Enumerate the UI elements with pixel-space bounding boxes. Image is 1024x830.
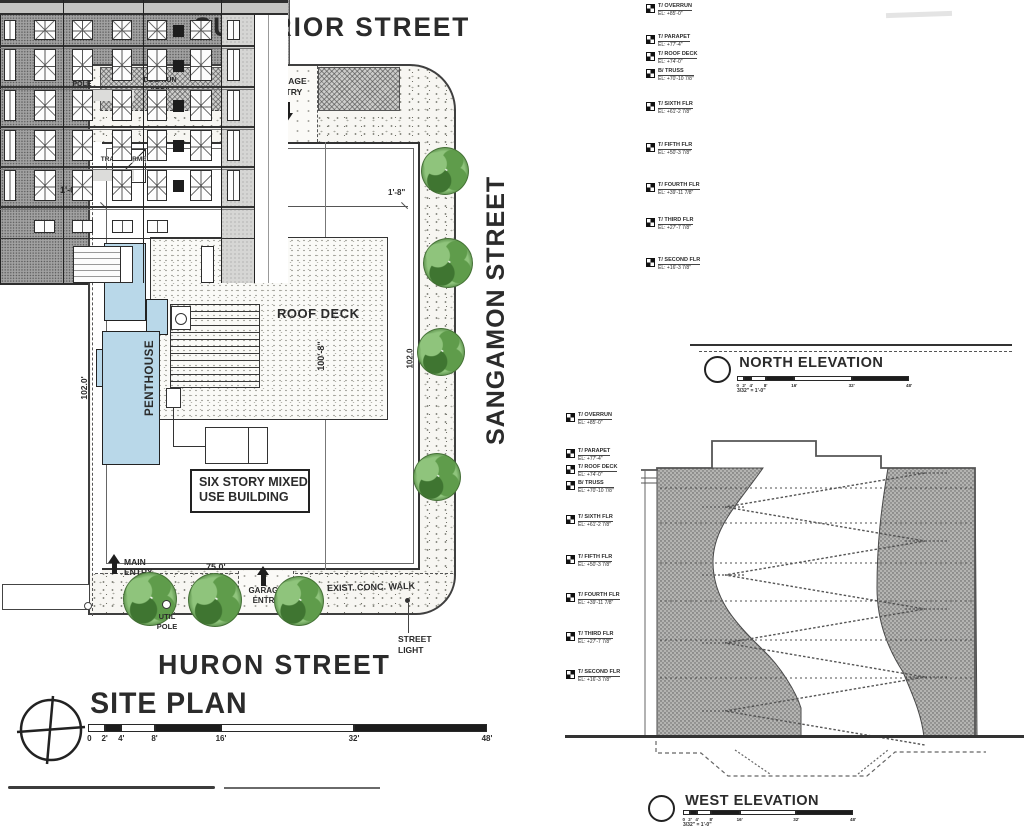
scale-tick-label: 4' [695,817,699,822]
marker-label: T/ OVERRUNEL: +85'-0" [658,3,692,18]
scale-segment [740,810,797,815]
west-elevation-scale-bar: 02'4'8'16'32'48' [683,810,853,815]
benchmark-icon [566,413,575,422]
window [227,49,240,81]
marker-elevation: EL: +27'-7 7/8" [578,639,613,645]
util-pole-bottom-label: UTILPOLE [152,612,182,632]
marker-label: T/ FIFTH FLREL: +50'-3 7/8" [658,142,692,157]
roof-hatch-box [166,388,181,408]
marker-name: T/ PARAPET [658,34,690,42]
scale-tick-label: 2' [742,383,746,388]
marker-name: T/ ROOF DECK [658,51,697,59]
scale-segment [737,376,744,381]
scale-segment [683,810,690,815]
benchmark-icon [646,143,655,152]
marker-label: T/ FOURTH FLREL: +39'-11 7/8" [658,182,700,197]
bay-divider [63,0,64,283]
west-ground-line [565,735,1024,738]
scale-segment [751,376,765,381]
side-strip [254,0,288,283]
mech-box [205,427,268,464]
window [190,130,212,161]
elevation-marker: T/ FOURTH FLREL: +39'-11 7/8" [646,182,700,197]
benchmark-icon [566,481,575,490]
window [34,90,56,121]
marker-elevation: EL: +61'-2 7/8" [578,522,613,528]
roof-line-h [173,446,205,447]
window [147,49,167,81]
neighbor-walk [2,584,90,610]
window [34,170,56,201]
marker-label: T/ PARAPETEL: +77'-4" [578,448,610,463]
floor-line [0,126,254,128]
scale-segment [105,724,122,732]
window [227,20,240,40]
west-elevation-title: WEST ELEVATION [685,792,819,809]
benchmark-icon [566,670,575,679]
benchmark-icon [646,218,655,227]
west-elevation-drawing-main [640,415,1024,820]
site-plan-title: SITE PLAN [90,687,247,721]
scale-segment [121,724,154,732]
marker-label: T/ ROOF DECKEL: +74'-0" [658,51,697,66]
window [4,49,16,81]
marker-name: T/ FOURTH FLR [658,182,700,190]
street-name-sangamon: SANGAMON STREET [482,185,512,445]
window [227,130,240,161]
marker-name: B/ TRUSS [578,480,614,488]
site-plan-scale-bar: 02'4'8'16'32'48' [88,724,487,732]
scale-tick-label: 48' [906,383,912,388]
dim-deck-depth: 100'-8" [316,332,326,380]
elevation-marker: T/ PARAPETEL: +77'-4" [646,34,690,49]
north-scale-note: 3/32" = 1'-0" [737,388,766,394]
marker-name: T/ SECOND FLR [578,669,620,677]
scale-tick-label: 48' [850,817,856,822]
scale-tick-label: 0 [736,383,739,388]
window [190,49,212,81]
tree-icon [274,576,324,626]
marker-label: T/ THIRD FLREL: +27'-7 7/8" [658,217,693,232]
window [4,170,16,201]
marker-elevation: EL: +50'-3 7/8" [578,562,612,568]
benchmark-icon [566,465,575,474]
north-base-line [690,344,1012,346]
scale-tick-label: 32' [793,817,799,822]
tree-icon [417,328,465,376]
window [72,130,93,161]
tree-icon [413,453,461,501]
dim-left-depth: 102.0' [79,370,89,406]
window [190,20,212,40]
marker-label: B/ TRUSSEL: +70'-10 7/8" [578,480,614,495]
architectural-sheet: SUPERIOR STREET DOG RUNAREA GARAGEENTRY … [0,0,1024,830]
watertable-line [0,238,254,239]
marker-elevation: EL: +70'-10 7/8" [658,76,694,82]
property-line-left [92,142,93,616]
marker-elevation: EL: +74'-0" [578,472,617,478]
scale-tick-label: 8' [151,734,157,743]
benchmark-icon [566,555,575,564]
bay-divider [143,0,144,283]
main-entry-arrow [107,554,121,574]
elevation-marker: T/ SIXTH FLREL: +61'-2 7/8" [566,514,613,529]
marker-label: T/ SECOND FLREL: +16'-3 7/8" [578,669,620,684]
building-label-line1: SIX STORY MIXED [199,475,308,490]
window [147,90,167,121]
north-elevation-scale-bar: 02'4'8'16'32'48' [737,376,909,381]
scan-line-2 [224,787,380,789]
scan-smudge [886,11,952,18]
dark-panel [173,140,184,152]
marker-label: T/ SIXTH FLREL: +61'-2 7/8" [658,101,693,116]
tree-icon [421,147,469,195]
elevation-marker: T/ SECOND FLREL: +16'-3 7/8" [646,257,700,272]
benchmark-icon [566,632,575,641]
roof-line-v [173,408,174,446]
floor-line-thin [0,209,254,210]
north-compass-icon [16,694,86,766]
benchmark-icon [646,258,655,267]
north-elevation-title: NORTH ELEVATION [739,354,883,371]
floor-line [0,86,254,88]
window [4,90,16,121]
marker-elevation: EL: +39'-11 7/8" [578,600,620,606]
window [112,220,133,233]
dark-panel [173,100,184,112]
scale-tick-label: 4' [750,383,754,388]
dim-bottom: 75.0' [206,562,226,572]
entry-door [201,246,214,283]
benchmark-icon [646,4,655,13]
north-ground-dashed [699,351,1012,352]
marker-elevation: EL: +74'-0" [658,59,697,65]
marker-elevation: EL: +85'-0" [658,11,692,17]
street-light-label: STREETLIGHT [398,634,432,656]
benchmark-icon [646,102,655,111]
window [34,220,55,233]
scale-tick-label: 16' [216,734,227,743]
marker-name: T/ SIXTH FLR [578,514,613,522]
window [227,90,240,121]
window [112,130,132,161]
street-light-leader [408,603,409,633]
marker-elevation: EL: +39'-11 7/8" [658,190,700,196]
garage-door [73,246,127,283]
scale-segment [794,376,851,381]
scale-segment [690,810,697,815]
scale-segment [852,376,909,381]
bay-divider [221,0,222,283]
scale-tick-label: 32' [849,383,855,388]
scale-segment [711,810,739,815]
dim-right-offset: 1'-8" [388,188,405,197]
window [72,170,93,201]
building-label-line2: USE BUILDING [199,490,308,505]
marker-name: T/ SIXTH FLR [658,101,693,109]
window [112,20,132,40]
benchmark-icon [646,52,655,61]
entry-door [120,246,133,283]
scale-segment [744,376,751,381]
marker-name: T/ FIFTH FLR [658,142,692,150]
window [72,220,93,233]
benchmark-icon [566,515,575,524]
window [147,20,167,40]
window [147,170,167,201]
window [227,170,240,201]
benchmark-icon [646,183,655,192]
benchmark-icon [566,449,575,458]
marker-name: B/ TRUSS [658,68,694,76]
window [72,20,93,40]
scan-line-1 [8,786,215,789]
scale-segment [354,724,487,732]
marker-label: T/ FOURTH FLREL: +39'-11 7/8" [578,592,620,607]
marker-name: T/ OVERRUN [658,3,692,11]
elevator-box [171,306,191,330]
marker-label: T/ PARAPETEL: +77'-4" [658,34,690,49]
marker-elevation: EL: +16'-3 7/8" [578,677,620,683]
window [34,130,56,161]
window [4,130,16,161]
floor-line [0,166,254,168]
scale-tick-label: 16' [737,817,743,822]
marker-elevation: EL: +50'-3 7/8" [658,150,692,156]
marker-label: T/ OVERRUNEL: +85'-0" [578,412,612,427]
window [112,90,132,121]
dim-right-depth: 102.0 [406,341,415,377]
elevation-marker: B/ TRUSSEL: +70'-10 7/8" [646,68,694,83]
elevation-marker: T/ OVERRUNEL: +85'-0" [646,3,692,18]
window [72,90,93,121]
elevation-marker: T/ FIFTH FLREL: +50'-3 7/8" [646,142,692,157]
scale-segment [697,810,711,815]
scale-segment [88,724,105,732]
window [112,170,132,201]
roof-deck-label: ROOF DECK [277,306,360,321]
window [4,20,16,40]
side-strip-line [268,0,269,283]
building-label-box: SIX STORY MIXED USE BUILDING [190,469,310,513]
scale-tick-label: 8' [764,383,768,388]
marker-label: T/ SIXTH FLREL: +61'-2 7/8" [578,514,613,529]
scale-tick-label: 8' [710,817,714,822]
elevation-marker: T/ ROOF DECKEL: +74'-0" [566,464,617,479]
window [34,20,56,40]
marker-name: T/ THIRD FLR [578,631,613,639]
marker-elevation: EL: +27'-7 7/8" [658,225,693,231]
marker-elevation: EL: +16'-3 7/8" [658,265,700,271]
elevation-marker: B/ TRUSSEL: +70'-10 7/8" [566,480,614,495]
window [34,49,56,81]
scale-tick-label: 2' [101,734,107,743]
elevation-marker: T/ FIFTH FLREL: +50'-3 7/8" [566,554,612,569]
floor-line [0,45,254,47]
scale-tick-label: 4' [118,734,124,743]
marker-elevation: EL: +61'-2 7/8" [658,109,693,115]
marker-name: T/ FIFTH FLR [578,554,612,562]
scale-tick-label: 0 [682,817,685,822]
marker-name: T/ PARAPET [578,448,610,456]
dark-panel [173,180,184,192]
marker-name: T/ OVERRUN [578,412,612,420]
west-title-bubble [648,795,675,822]
tree-icon [188,573,242,627]
elevation-marker: T/ ROOF DECKEL: +74'-0" [646,51,697,66]
util-pole-bottom-symbol [162,600,171,609]
marker-elevation: EL: +70'-10 7/8" [578,488,614,494]
hatched-strip [318,67,400,111]
marker-label: T/ ROOF DECKEL: +74'-0" [578,464,617,479]
window [190,90,212,121]
window [147,130,167,161]
cornice [0,0,288,15]
scale-tick-label: 2' [688,817,692,822]
marker-label: T/ THIRD FLREL: +27'-7 7/8" [578,631,613,646]
marker-elevation: EL: +77'-4" [658,42,690,48]
north-title-bubble [704,356,731,383]
marker-label: T/ FIFTH FLREL: +50'-3 7/8" [578,554,612,569]
window [112,49,132,81]
floor-line [0,206,254,208]
dark-panel [173,60,184,72]
scale-tick-label: 16' [791,383,797,388]
neighbor-walk-pole [84,602,92,610]
benchmark-icon [566,593,575,602]
elevation-marker: T/ FOURTH FLREL: +39'-11 7/8" [566,592,620,607]
west-scale-note: 3/32" = 1'-0" [683,822,712,828]
marker-name: T/ ROOF DECK [578,464,617,472]
street-name-huron: HURON STREET [158,649,391,681]
elevation-marker: T/ OVERRUNEL: +85'-0" [566,412,612,427]
scale-segment [766,376,795,381]
elevation-marker: T/ SECOND FLREL: +16'-3 7/8" [566,669,620,684]
marker-elevation: EL: +85'-0" [578,420,612,426]
scale-tick-label: 0 [87,734,91,743]
benchmark-icon [646,69,655,78]
scale-segment [796,810,853,815]
marker-elevation: EL: +77'-4" [578,456,610,462]
marker-name: T/ FOURTH FLR [578,592,620,600]
scale-segment [155,724,222,732]
marker-label: B/ TRUSSEL: +70'-10 7/8" [658,68,694,83]
elevation-marker: T/ SIXTH FLREL: +61'-2 7/8" [646,101,693,116]
marker-name: T/ THIRD FLR [658,217,693,225]
penthouse-label: PENTHOUSE [144,330,158,426]
scale-tick-label: 48' [482,734,493,743]
window [190,170,212,201]
window [72,49,93,81]
elevation-marker: T/ THIRD FLREL: +27'-7 7/8" [566,631,613,646]
dark-panel [173,25,184,37]
marker-label: T/ SECOND FLREL: +16'-3 7/8" [658,257,700,272]
window [147,220,168,233]
benchmark-icon [646,35,655,44]
tree-icon [423,238,473,288]
scale-segment [221,724,354,732]
marker-name: T/ SECOND FLR [658,257,700,265]
garage-entry-bottom-arrow [256,566,270,586]
elevation-marker: T/ PARAPETEL: +77'-4" [566,448,610,463]
elevation-marker: T/ THIRD FLREL: +27'-7 7/8" [646,217,693,232]
scale-tick-label: 32' [349,734,360,743]
